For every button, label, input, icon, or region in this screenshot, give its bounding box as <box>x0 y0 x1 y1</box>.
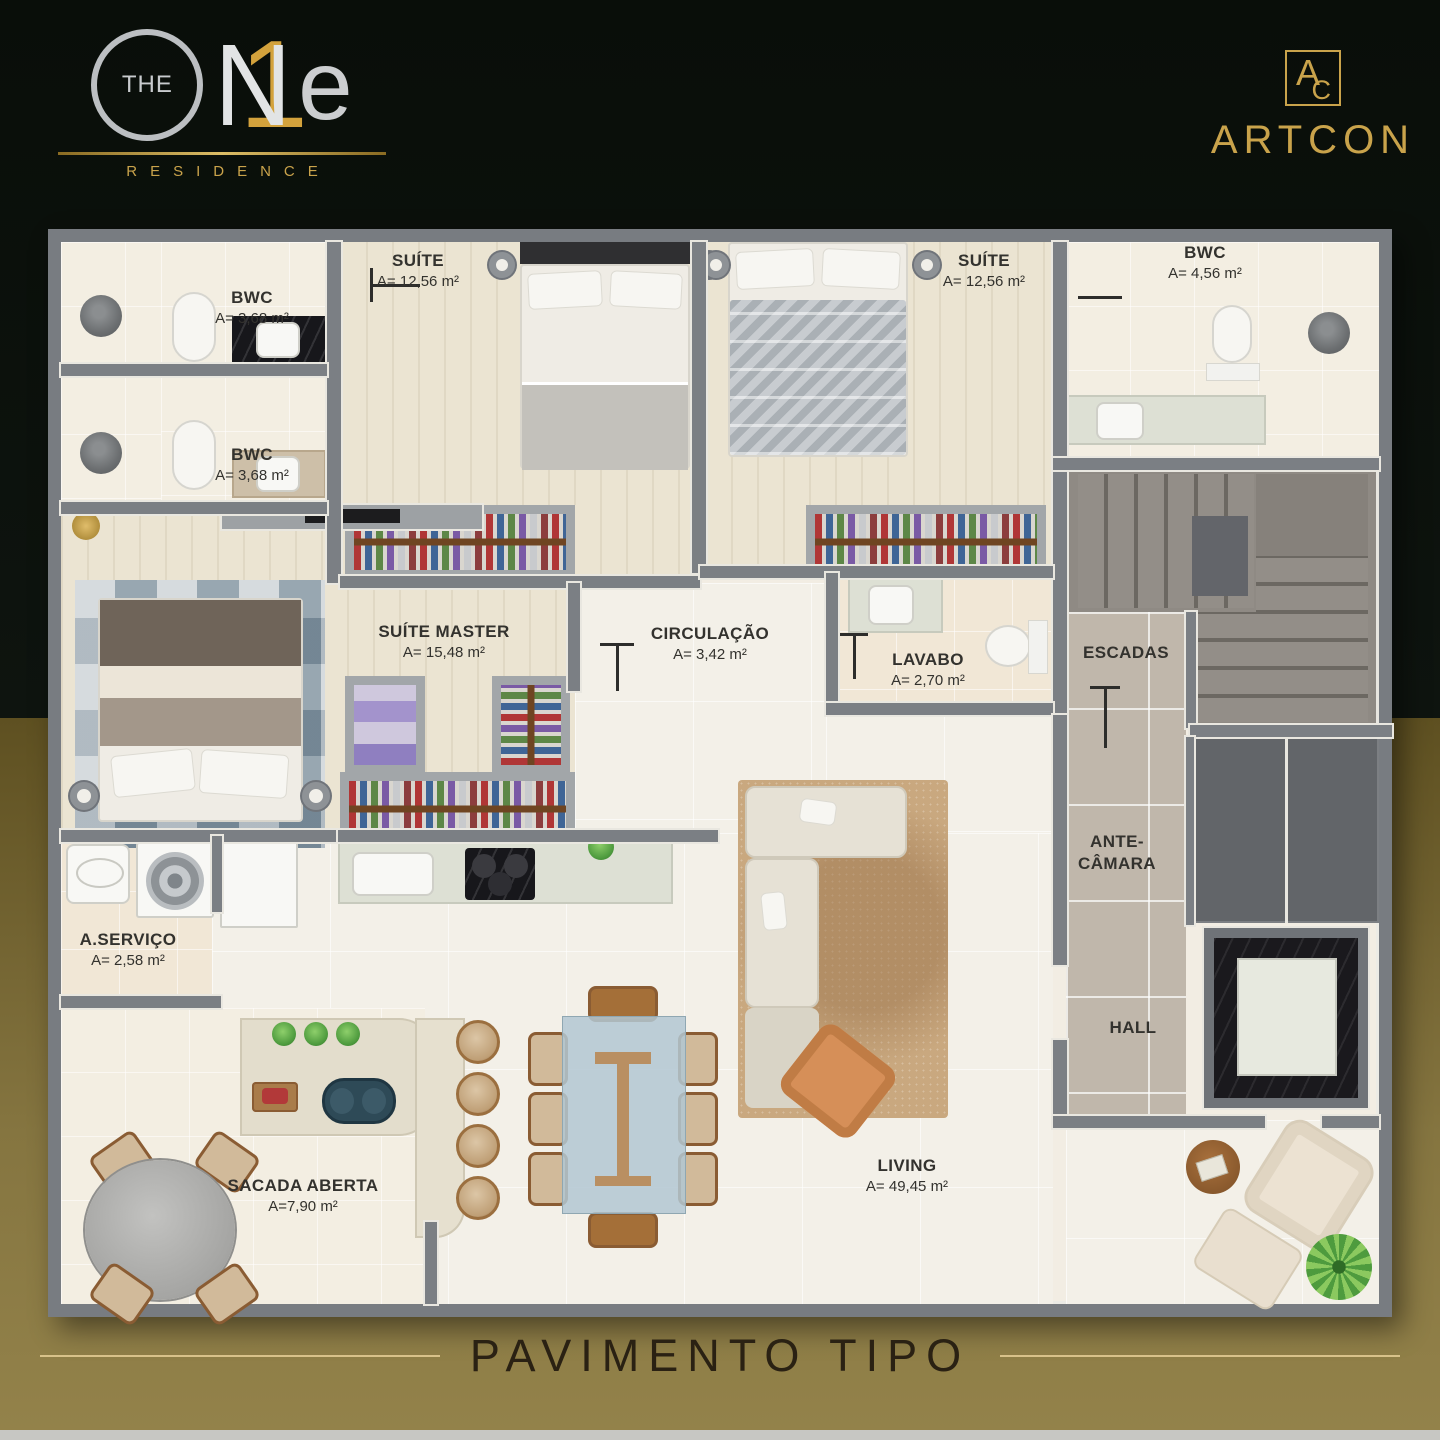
logo-the: THE <box>122 71 173 99</box>
wall-segment <box>340 576 700 588</box>
room-label-suite2: SUÍTE A= 12,56 m² <box>943 250 1025 292</box>
wall-segment <box>1053 458 1379 470</box>
elevator-cab <box>1237 958 1337 1076</box>
stair-landing <box>1256 474 1368 556</box>
stool-icon <box>456 1020 500 1064</box>
logo-gold-rule <box>58 152 386 155</box>
stair-core <box>1192 516 1248 596</box>
sink-bowl <box>330 1088 354 1114</box>
pillow <box>199 749 290 799</box>
wall-segment <box>425 1222 437 1304</box>
stool-icon <box>456 1124 500 1168</box>
footer-rule-left <box>40 1355 440 1357</box>
wall-segment <box>826 573 838 715</box>
wall-segment <box>61 502 327 514</box>
sink-bowl <box>362 1088 386 1114</box>
pillow <box>760 891 788 931</box>
pillow <box>735 248 815 290</box>
table-pedestal <box>595 1052 651 1064</box>
closet-shelves <box>345 676 425 774</box>
room-label-living: LIVING A= 49,45 m² <box>866 1155 948 1197</box>
wall-segment <box>1186 612 1196 728</box>
plant-icon <box>80 432 122 474</box>
wall-segment <box>61 996 221 1008</box>
dimension-marker <box>600 643 634 646</box>
table-pedestal <box>595 1176 651 1186</box>
wall-segment <box>700 566 1053 578</box>
room-label-escadas: ESCADAS <box>1083 642 1169 664</box>
table-pedestal <box>617 1064 629 1176</box>
tub-basin <box>76 858 124 888</box>
bed-duvet-patterned <box>730 300 906 455</box>
artcon-monogram-icon: A C <box>1285 50 1341 106</box>
burner-icon <box>488 872 512 896</box>
wall-segment <box>327 242 341 583</box>
food-icon <box>262 1088 288 1104</box>
wall-segment <box>1053 715 1067 965</box>
kitchen-sink <box>352 852 434 896</box>
plant-icon <box>336 1022 360 1046</box>
chair-icon <box>588 1212 658 1248</box>
stool-icon <box>456 1072 500 1116</box>
logo-residence: RESIDENCE <box>48 163 396 180</box>
wall-segment <box>1186 737 1194 925</box>
artcon-logo: A C ARTCON <box>1208 50 1418 163</box>
wall-segment <box>1322 1116 1379 1128</box>
dimension-marker <box>1104 688 1107 748</box>
duvet-stripe-dark <box>100 600 301 666</box>
bed-blanket <box>522 382 688 470</box>
lamp-icon <box>489 252 515 278</box>
dimension-marker <box>840 633 868 636</box>
sink-icon <box>868 585 914 625</box>
wall-segment <box>61 830 338 842</box>
room-label-hall: HALL <box>1110 1017 1157 1039</box>
room-label-suite1: SUÍTE A= 12,56 m² <box>377 250 459 292</box>
shaft-divider <box>1285 737 1288 923</box>
room-label-bwc1: BWC A= 3,68 m² <box>215 287 289 329</box>
toilet-icon <box>172 420 216 490</box>
wall-segment <box>1053 242 1067 715</box>
the-circle-icon: THE <box>91 29 203 141</box>
pillow <box>609 270 683 310</box>
room-label-bwc3: BWC A= 4,56 m² <box>1168 242 1242 284</box>
wall-segment <box>826 703 1053 715</box>
the-one-wordmark: THE N 1 e <box>48 22 396 148</box>
pillow <box>110 748 196 798</box>
gold-ornament-icon <box>72 512 100 540</box>
the-one-logo: THE N 1 e RESIDENCE <box>48 22 396 180</box>
wall-segment <box>1053 1116 1265 1128</box>
artcon-name: ARTCON <box>1208 118 1418 163</box>
dimension-marker <box>616 645 619 691</box>
plan-title: PAVIMENTO TIPO <box>470 1330 970 1382</box>
wall-segment <box>212 836 222 912</box>
toilet-icon <box>985 625 1031 667</box>
bed-headboard <box>520 242 690 264</box>
closet-rack-vertical <box>492 676 570 774</box>
pillow <box>799 798 838 827</box>
room-label-sacada: SACADA ABERTA A=7,90 m² <box>228 1175 379 1217</box>
washer-drum <box>146 852 204 910</box>
room-label-a-servico: A.SERVIÇO A= 2,58 m² <box>80 929 177 971</box>
fridge-icon <box>220 842 298 928</box>
dimension-marker <box>1078 296 1122 299</box>
sink-icon <box>1096 402 1144 440</box>
lamp-icon <box>703 252 729 278</box>
wall-segment <box>568 583 580 691</box>
lamp-icon <box>302 782 330 810</box>
toilet-icon <box>1212 305 1252 363</box>
duvet-stripe-cream <box>100 666 301 698</box>
logo-n: N <box>215 18 292 152</box>
wall-segment <box>1053 1040 1067 1116</box>
plant-spiky-icon <box>1306 1234 1372 1300</box>
lamp-icon <box>70 782 98 810</box>
bottom-edge-strip <box>0 1430 1440 1440</box>
room-label-ante-camara: ANTE- CÂMARA <box>1078 831 1156 875</box>
wall-segment <box>692 242 706 573</box>
toilet-tank <box>1206 363 1260 381</box>
footer: PAVIMENTO TIPO <box>0 1330 1440 1382</box>
wall-segment <box>61 364 327 376</box>
toilet-icon <box>172 292 216 362</box>
wall-segment <box>338 830 718 842</box>
room-label-circulacao: CIRCULAÇÃO A= 3,42 m² <box>651 623 769 665</box>
dimension-marker <box>1090 686 1120 689</box>
dimension-marker <box>370 268 373 302</box>
pillow <box>821 248 901 290</box>
plant-icon <box>304 1022 328 1046</box>
plant-icon <box>1308 312 1350 354</box>
toilet-tank <box>1028 620 1048 674</box>
plant-icon <box>272 1022 296 1046</box>
room-label-bwc2: BWC A= 3,68 m² <box>215 444 289 486</box>
pillow <box>527 270 603 310</box>
stool-icon <box>456 1176 500 1220</box>
duvet-stripe-taupe <box>100 698 301 746</box>
logo-e: e <box>298 29 353 142</box>
stair-treads-lower <box>1190 612 1256 722</box>
sofa-left <box>745 858 819 1008</box>
dimension-marker <box>853 635 856 679</box>
room-label-suite-master: SUÍTE MASTER A= 15,48 m² <box>378 621 509 663</box>
stair-treads-right <box>1256 556 1368 722</box>
lamp-icon <box>914 252 940 278</box>
footer-rule-right <box>1000 1355 1400 1357</box>
wall-segment <box>1190 725 1392 737</box>
monogram-c: C <box>1312 75 1332 106</box>
plant-icon <box>80 295 122 337</box>
room-label-lavabo: LAVABO A= 2,70 m² <box>891 649 965 691</box>
